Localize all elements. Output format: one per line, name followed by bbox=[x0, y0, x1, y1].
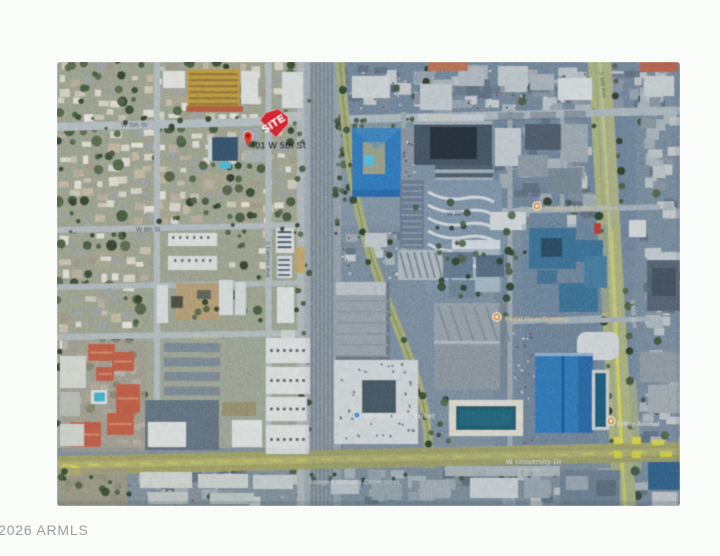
svg-text:401 W 5th St: 401 W 5th St bbox=[250, 141, 306, 151]
svg-text:©2026 ARMLS: ©2026 ARMLS bbox=[0, 522, 89, 538]
